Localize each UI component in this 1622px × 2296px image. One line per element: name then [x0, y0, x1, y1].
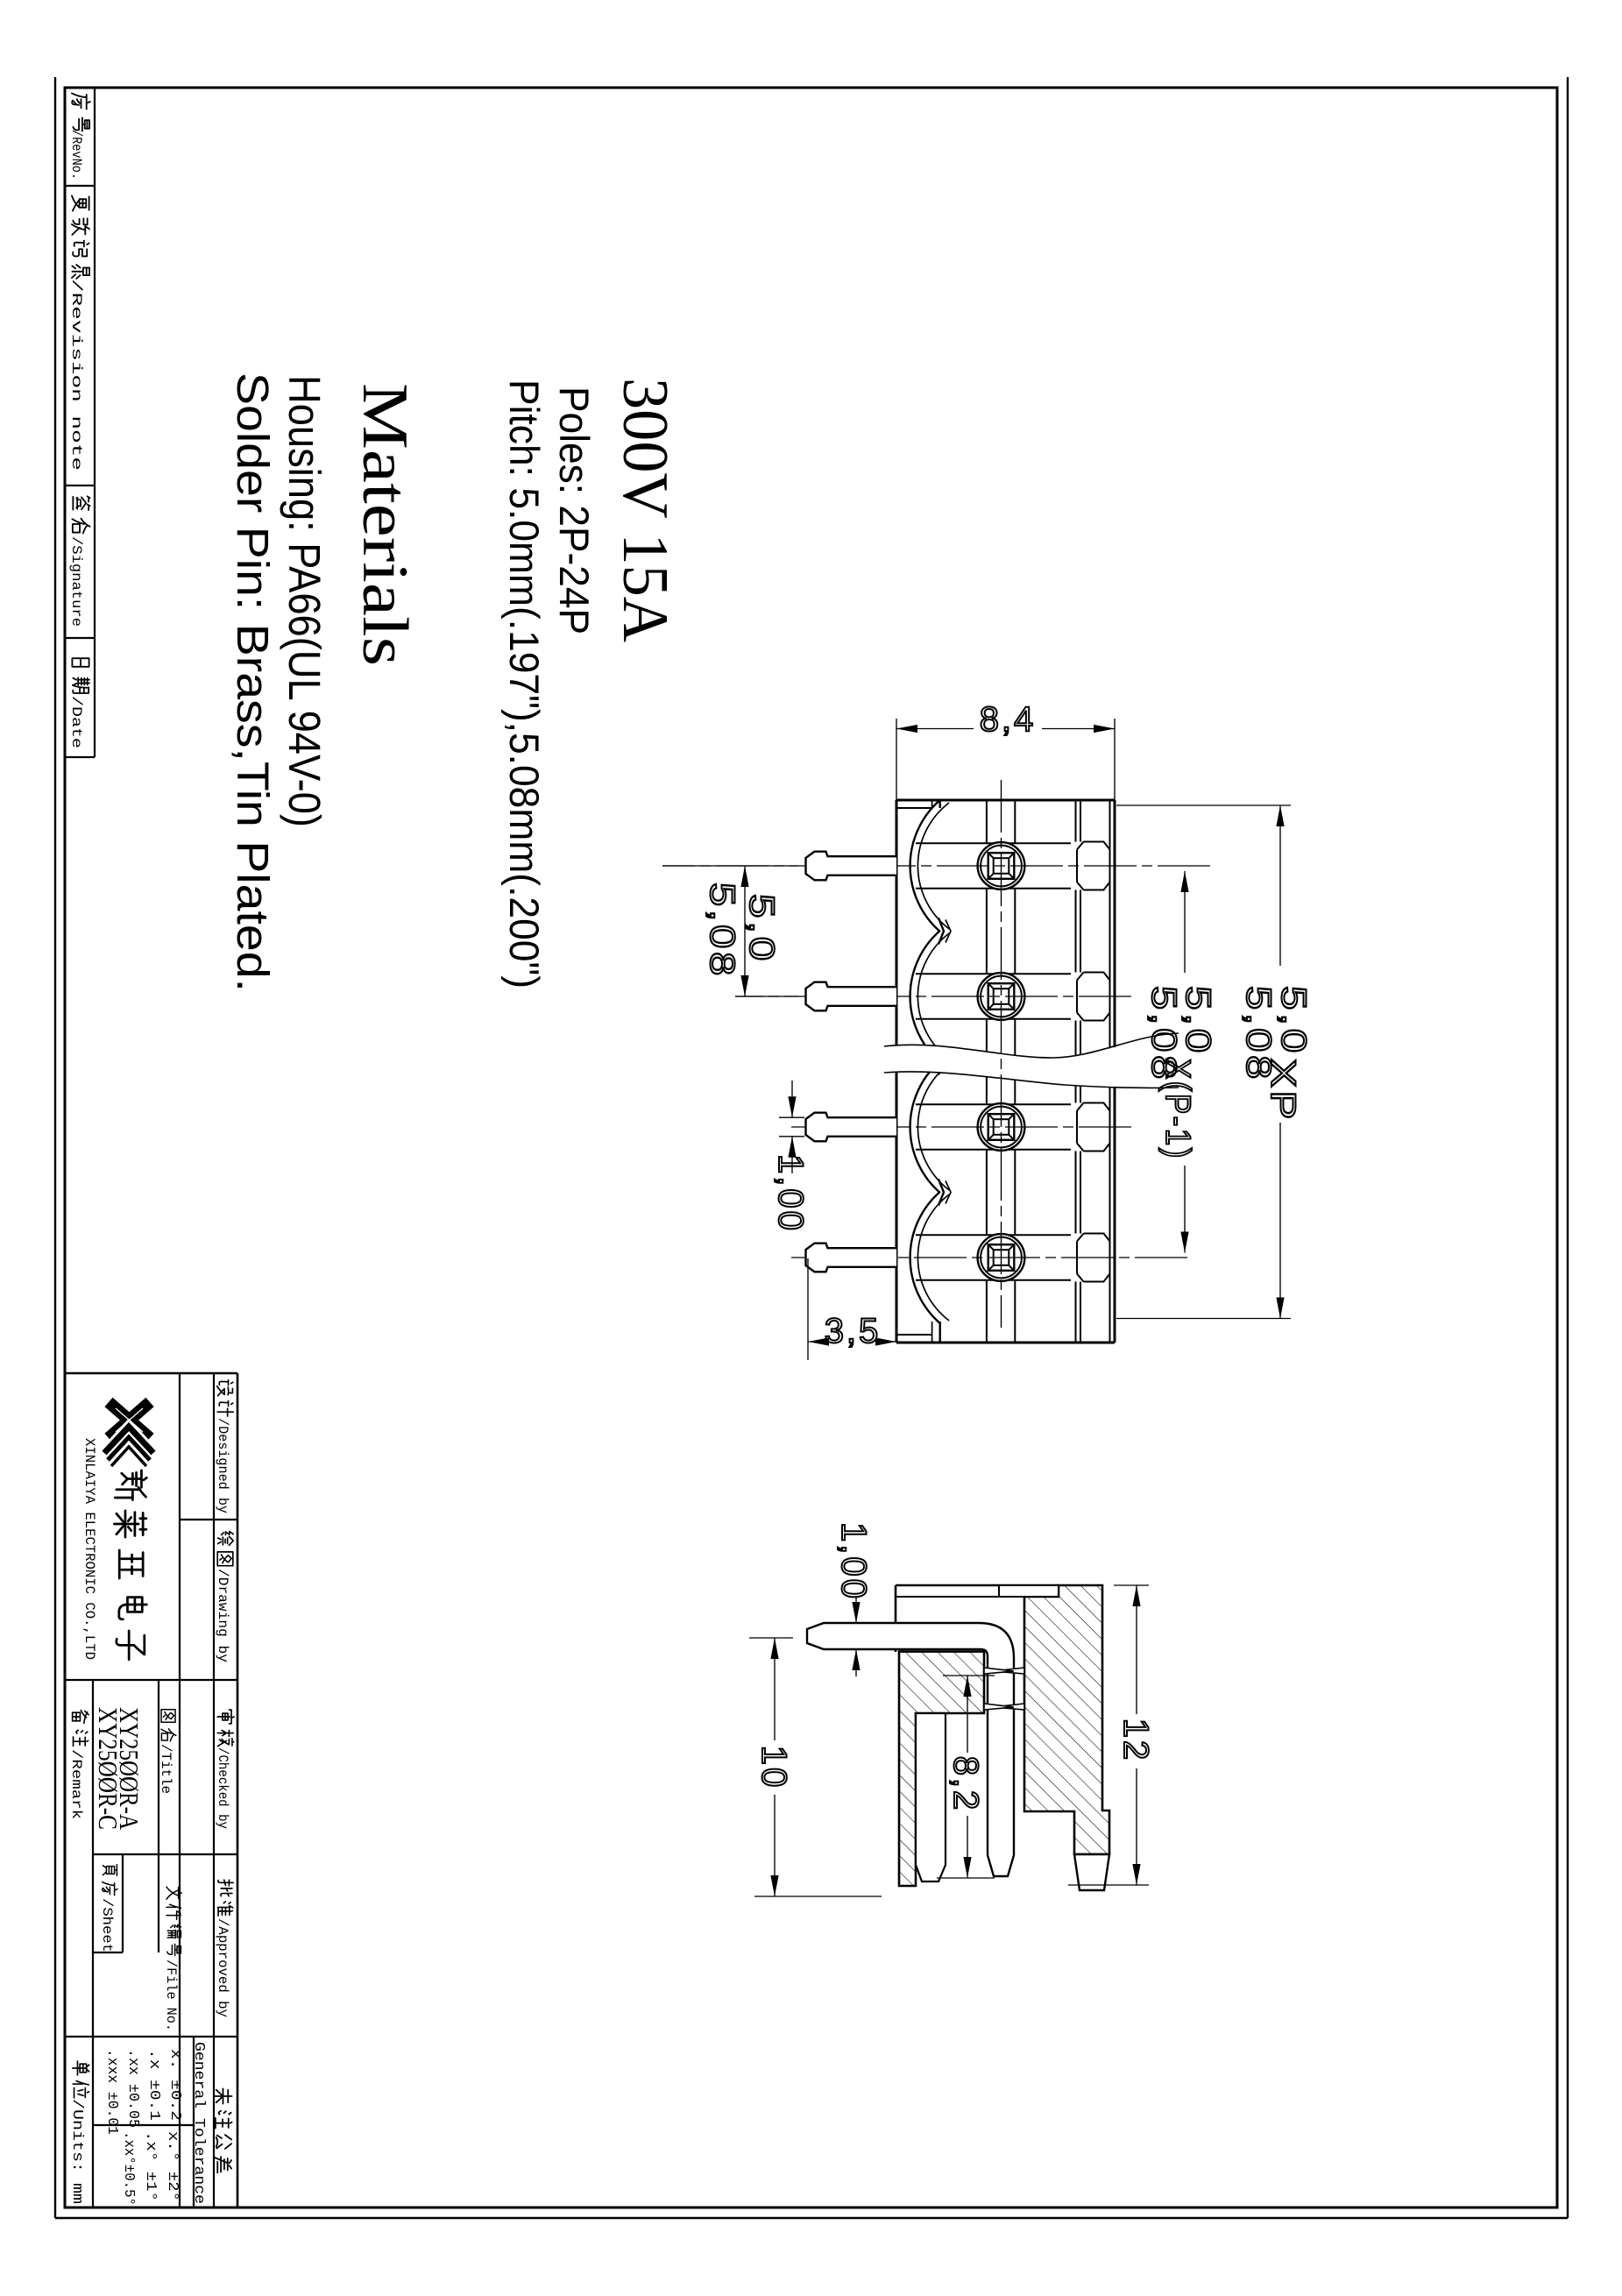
svg-text:Housing: PA66(UL 94V-0): Housing: PA66(UL 94V-0): [280, 375, 329, 827]
svg-text:Pitch: 5.0mm(.197"),5.08mm(.20: Pitch: 5.0mm(.197"),5.08mm(.200"): [501, 379, 548, 989]
svg-text:1,00: 1,00: [771, 1154, 810, 1233]
svg-text:.xx ±0.05: .xx ±0.05: [124, 2049, 141, 2128]
svg-text:x.° ±2°: x.° ±2°: [164, 2131, 181, 2201]
svg-text:Solder Pin: Brass,Tin Plated.: Solder Pin: Brass,Tin Plated.: [228, 372, 278, 992]
svg-text:Poles: 2P-24P: Poles: 2P-24P: [551, 386, 598, 634]
svg-text:XP: XP: [1264, 1059, 1302, 1123]
svg-text:8,4: 8,4: [980, 700, 1037, 739]
svg-text:x. ±0.2: x. ±0.2: [166, 2049, 183, 2121]
svg-text:5,0: 5,0: [1274, 986, 1313, 1056]
svg-text:/Drawing by: /Drawing by: [215, 1569, 230, 1662]
svg-text:/RevNo.: /RevNo.: [68, 130, 84, 180]
svg-text:.x° ±1°: .x° ±1°: [142, 2131, 159, 2201]
svg-text:12: 12: [1116, 1718, 1155, 1763]
svg-text:/Checked by: /Checked by: [215, 1747, 230, 1829]
svg-text:.x ±0.1: .x ±0.1: [145, 2049, 162, 2121]
svg-text:1,00: 1,00: [834, 1522, 873, 1601]
svg-text:/Approved by: /Approved by: [215, 1918, 230, 2017]
svg-text:300V 15A: 300V 15A: [609, 378, 681, 642]
svg-text:/Title: /Title: [158, 1744, 174, 1794]
svg-text:/Signature: /Signature: [68, 536, 84, 627]
svg-text:/Designed by: /Designed by: [215, 1418, 230, 1513]
svg-text:5,0: 5,0: [742, 894, 781, 964]
svg-text:XINLAIYA ELECTRONIC CO.,LTD: XINLAIYA ELECTRONIC CO.,LTD: [81, 1438, 97, 1660]
svg-text:5,08: 5,08: [703, 882, 741, 979]
svg-text:/File No.: /File No.: [163, 1959, 179, 2031]
svg-text:/Date: /Date: [68, 696, 84, 748]
svg-text:/Units: mm: /Units: mm: [68, 2099, 85, 2204]
svg-text:X(P-1): X(P-1): [1158, 1059, 1197, 1160]
svg-text:.xxx ±0.01: .xxx ±0.01: [103, 2049, 120, 2135]
svg-text:General Tolerance: General Tolerance: [190, 2042, 207, 2204]
svg-text:3,5: 3,5: [825, 1312, 882, 1350]
svg-text:Materials: Materials: [349, 383, 421, 666]
svg-text:10: 10: [754, 1746, 793, 1790]
svg-text:5,0: 5,0: [1179, 986, 1217, 1056]
svg-text:.xx°±0.5°: .xx°±0.5°: [120, 2131, 137, 2206]
svg-text:/Remark: /Remark: [68, 1749, 84, 1819]
svg-text:/Sheet: /Sheet: [99, 1898, 115, 1952]
svg-text:XY25ØØR-C: XY25ØØR-C: [93, 1707, 124, 1830]
svg-text:/Revision note: /Revision note: [68, 279, 84, 471]
svg-text:8,2: 8,2: [946, 1756, 985, 1813]
